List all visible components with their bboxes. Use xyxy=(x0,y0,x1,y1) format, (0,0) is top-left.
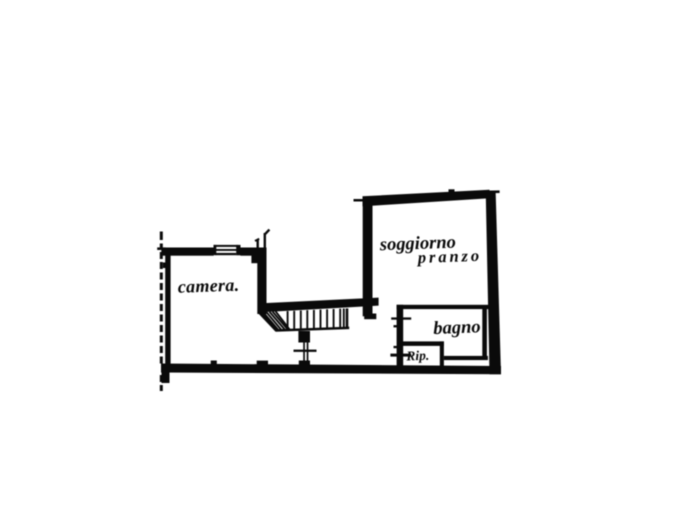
svg-text:bagno: bagno xyxy=(433,317,481,339)
svg-text:Rip.: Rip. xyxy=(405,348,429,364)
svg-text:camera.: camera. xyxy=(177,275,239,297)
svg-text:pranzo: pranzo xyxy=(415,246,482,267)
